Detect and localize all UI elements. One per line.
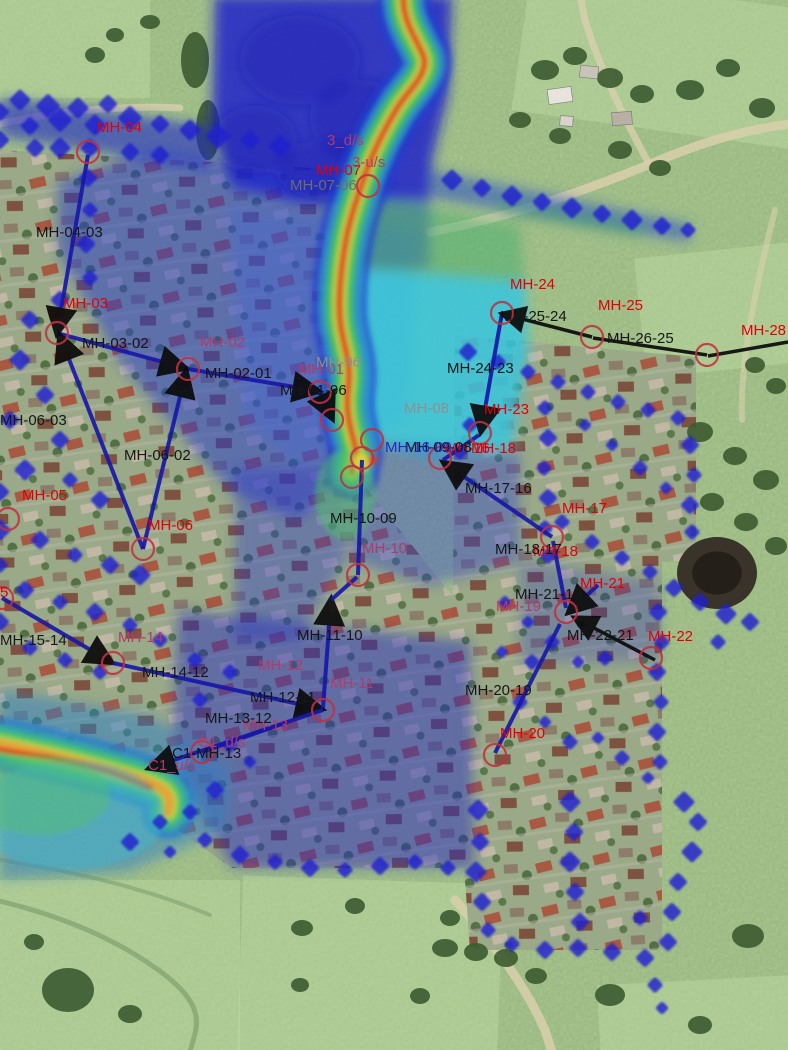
map-label: MH-03: [63, 295, 108, 312]
map-label: MH-22-21: [567, 627, 634, 644]
map-label: MH-28: [741, 322, 786, 339]
tree: [753, 470, 779, 490]
map-label: MH-22: [648, 628, 693, 645]
map-label: MH-25: [598, 297, 643, 314]
tree: [766, 378, 786, 394]
tree: [85, 47, 105, 63]
map-label: MH-21: [580, 575, 625, 592]
map-label: MH-06-02: [124, 447, 191, 464]
map-label: MH-17: [562, 500, 607, 517]
map-label: MH-02: [200, 334, 245, 351]
map-label: MH-10-09: [330, 510, 397, 527]
field-strip: [597, 975, 788, 1050]
tree: [563, 47, 587, 65]
map-label: MH-10: [362, 540, 407, 557]
map-label: MH-02-01: [205, 365, 272, 382]
farm-building: [547, 86, 573, 104]
tree: [732, 924, 764, 948]
map-label: MH-14-12: [142, 664, 209, 681]
tree: [24, 934, 44, 950]
map-label: MH-05: [22, 487, 67, 504]
map-label: MH-14: [118, 629, 163, 646]
map-label: MH-12: [258, 657, 303, 674]
map-label: MH-07-06: [290, 177, 357, 194]
map-label: MH-11: [330, 675, 374, 692]
map-label: C1-MH-13: [172, 745, 241, 762]
map-label: MH-21-18: [515, 586, 582, 603]
tree: [440, 910, 460, 926]
tree: [291, 978, 309, 992]
tree: [345, 898, 365, 914]
tree: [42, 968, 94, 1012]
field-strip: [0, 880, 240, 1050]
map-label: MH-08: [404, 400, 449, 417]
tree: [291, 920, 313, 936]
tree: [525, 968, 547, 984]
tree: [549, 128, 571, 144]
map-label: MH-26-25: [607, 330, 674, 347]
map-label: MH-04: [97, 119, 142, 136]
farm-dam-water: [692, 551, 742, 594]
tree: [509, 112, 531, 128]
tree: [749, 98, 775, 118]
tree: [595, 984, 625, 1006]
tree: [531, 60, 559, 80]
tree: [630, 85, 654, 103]
map-label: MH-20: [500, 725, 545, 742]
tree: [410, 988, 430, 1004]
flood-map-image: MH-04MH-03MH-05MH-06MH-07MH-24MH-25MH-28…: [0, 0, 788, 1050]
field-strip: [237, 876, 503, 1050]
map-label: MH-15-14: [0, 632, 67, 649]
tree: [649, 160, 671, 176]
tree: [597, 68, 623, 88]
farm-building: [560, 116, 574, 127]
tree: [700, 493, 724, 511]
map-label: MH-24: [510, 276, 555, 293]
tree: [734, 513, 758, 531]
map-label: MH-25-24: [500, 308, 567, 325]
map-label: MH-06-03: [0, 412, 67, 429]
tree: [723, 447, 747, 465]
tree: [464, 943, 488, 961]
map-label: 3-u/s: [352, 154, 385, 171]
tree: [432, 939, 458, 957]
tree: [688, 1016, 712, 1034]
flood-map: MH-04MH-03MH-05MH-06MH-07MH-24MH-25MH-28…: [0, 0, 788, 1050]
tree: [745, 357, 765, 373]
tree: [181, 32, 209, 88]
tree: [118, 1005, 142, 1023]
tree: [608, 141, 632, 159]
tree: [676, 80, 704, 100]
tree: [765, 537, 787, 555]
map-label: MH-12-11: [250, 689, 316, 706]
map-label: MH-13-12: [205, 710, 272, 727]
farm-building: [579, 65, 598, 79]
tree: [106, 28, 124, 42]
map-label: MH-24-23: [447, 360, 514, 377]
map-label: 3_d/s: [327, 132, 364, 149]
map-label: MH-96: [316, 354, 361, 371]
map-label: MH-20-19: [465, 682, 532, 699]
map-label: MH-18: [471, 440, 516, 457]
tree: [716, 59, 740, 77]
map-label: MH-03-02: [82, 335, 149, 352]
map-label: MH-16-09: [385, 439, 452, 456]
map-label: MH-01-96: [280, 382, 347, 399]
tree: [494, 949, 518, 967]
map-label: MH-11-10: [297, 627, 363, 644]
farm-dam: [677, 537, 757, 609]
map-label: 5: [0, 584, 8, 601]
field-strip: [0, 0, 150, 98]
tree: [140, 15, 160, 29]
map-label: MH-23: [484, 401, 529, 418]
map-label: MH-17-16: [465, 480, 532, 497]
map-label: MH-06: [148, 517, 193, 534]
map-label: MH-18-17: [495, 541, 562, 558]
map-label: MH-04-03: [36, 224, 103, 241]
farm-building: [612, 111, 633, 125]
